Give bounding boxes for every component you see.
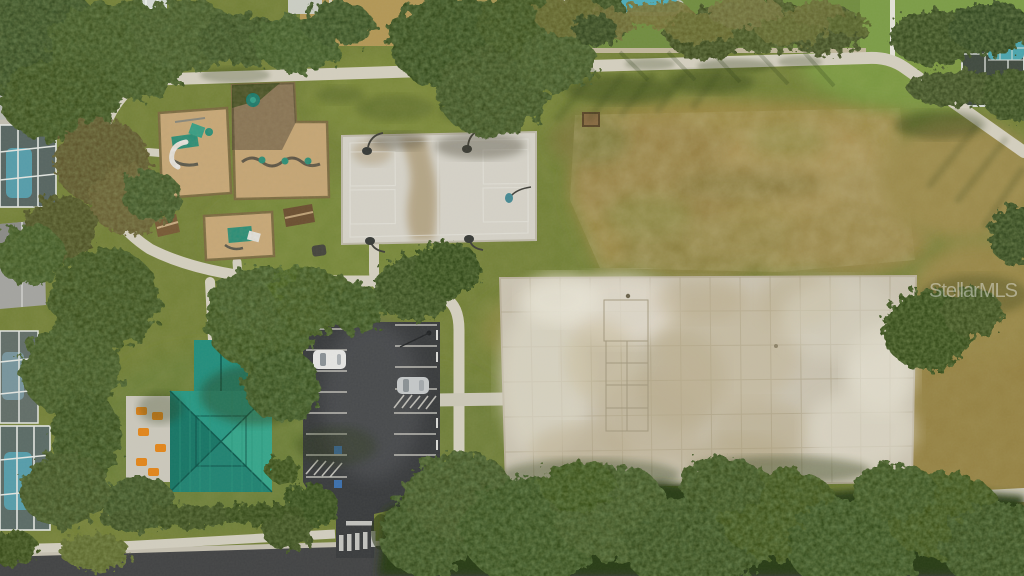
svg-text:StellarMLS: StellarMLS	[929, 280, 1018, 302]
